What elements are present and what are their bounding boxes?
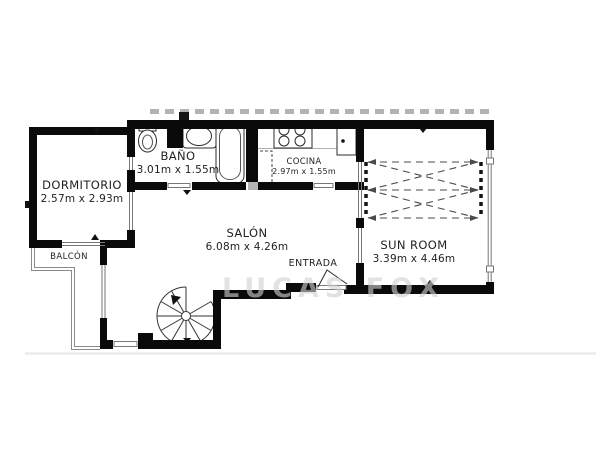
- dormitorio-name: DORMITORIO: [41, 179, 124, 193]
- room-label-salon: SALÓN 6.08m x 4.26m: [206, 227, 289, 253]
- terrace-dashes: [150, 112, 491, 121]
- sunroom-dims: 3.39m x 4.46m: [373, 253, 456, 265]
- bano-dims: 3.01m x 1.55m: [137, 164, 220, 176]
- entrada-name: ENTRADA: [289, 258, 338, 269]
- cocina-dims: 2.97m x 1.55m: [272, 167, 336, 176]
- balcony-railing: [32, 248, 101, 350]
- room-label-sunroom: SUN ROOM 3.39m x 4.46m: [373, 239, 456, 265]
- salon-name: SALÓN: [206, 227, 289, 241]
- spiral-staircase-icon: [157, 287, 215, 345]
- sunroom-name: SUN ROOM: [373, 239, 456, 253]
- balcon-name: BALCÓN: [50, 252, 88, 262]
- salon-dims: 6.08m x 4.26m: [206, 241, 289, 253]
- dormitorio-dims: 2.57m x 2.93m: [41, 193, 124, 205]
- floor-plan-drawing: [0, 0, 600, 450]
- fridge-icon: [337, 127, 356, 155]
- watermark-text: LUCAS FOX: [222, 273, 445, 304]
- bathtub-icon: [216, 123, 244, 183]
- room-label-dormitorio: DORMITORIO 2.57m x 2.93m: [41, 179, 124, 205]
- area-label-balcon: BALCÓN: [50, 252, 88, 262]
- area-label-entrada: ENTRADA: [289, 258, 338, 269]
- bano-name: BAÑO: [137, 150, 220, 164]
- room-label-bano: BAÑO 3.01m x 1.55m: [137, 150, 220, 176]
- cocina-name: COCINA: [272, 157, 336, 167]
- floor-plan: DORMITORIO 2.57m x 2.93m BAÑO 3.01m x 1.…: [0, 0, 600, 450]
- room-label-cocina: COCINA 2.97m x 1.55m: [272, 157, 336, 176]
- sunroom-skylight-hatch: [368, 162, 478, 218]
